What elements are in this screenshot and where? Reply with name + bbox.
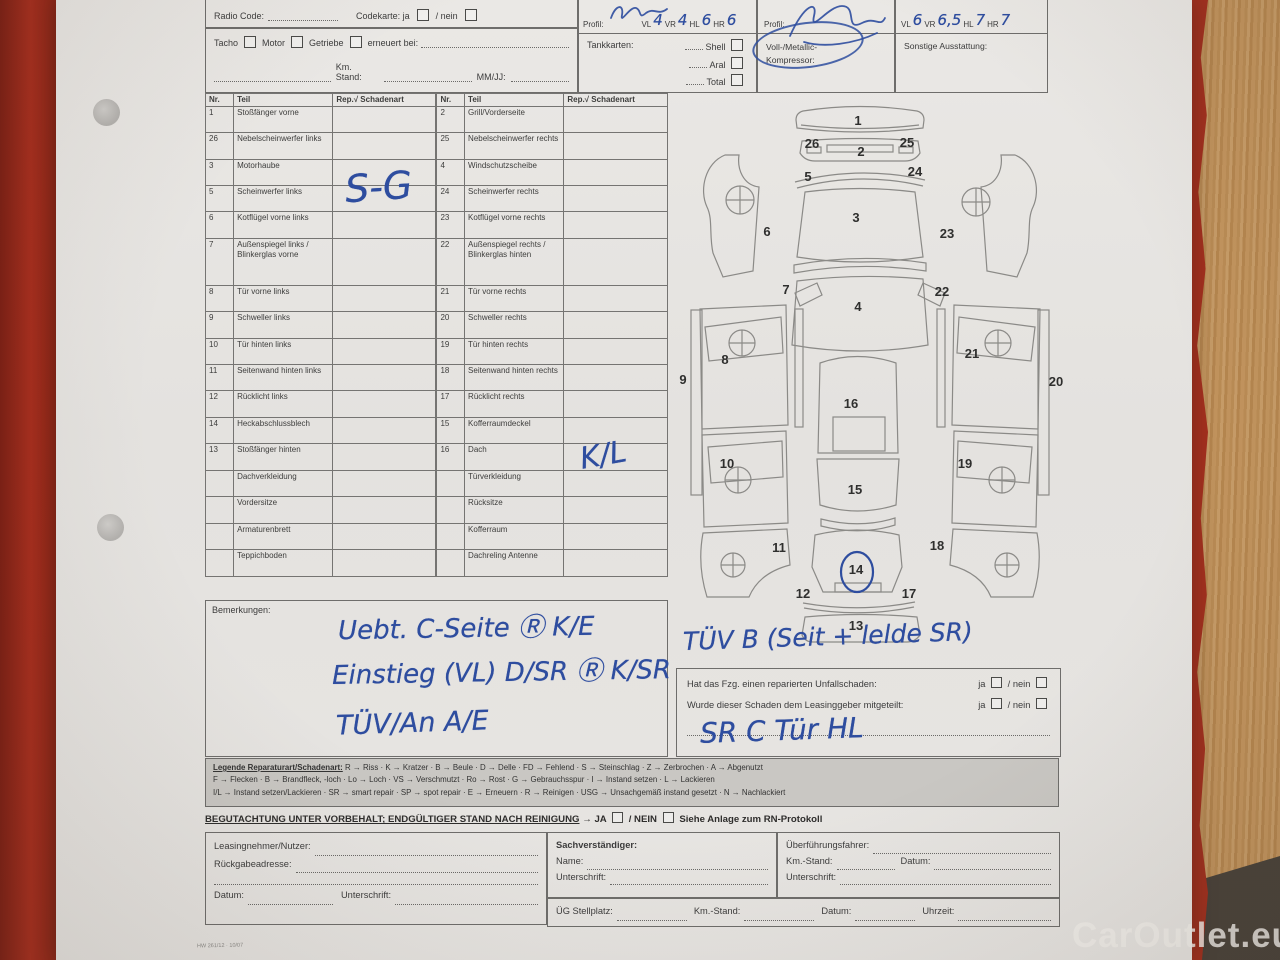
datum-field <box>855 909 915 921</box>
diagram-part-number: 25 <box>900 135 914 150</box>
sachverstaendiger-title: Sachverständiger: <box>556 838 768 854</box>
cell-nr: 4 <box>436 159 464 185</box>
profil-vr-value: 4 <box>678 11 688 29</box>
uhrzeit-label: Uhrzeit: <box>922 903 954 921</box>
mmjj-label: MM/JJ: <box>477 72 506 82</box>
cell-rep <box>333 106 437 132</box>
stellplatz-label: ÜG Stellplatz: <box>556 903 613 921</box>
cell-nr <box>436 523 464 549</box>
damage-parts-table: Nr. Teil Rep.√ Schadenart Nr. Teil Rep.√… <box>205 93 668 577</box>
uhrzeit-field <box>958 909 1051 921</box>
sonstige-box: VL 6 VR 6,5 HL 7 HR 7 Sonstige Ausstattu… <box>895 0 1048 93</box>
cell-rep <box>564 312 668 338</box>
unterschrift-field <box>840 873 1051 885</box>
profil2-vl-value: 6 <box>913 11 923 29</box>
diagram-part-number: 23 <box>940 226 954 241</box>
table-row: DachverkleidungTürverkleidung <box>206 470 668 496</box>
cell-rep <box>564 238 668 285</box>
cell-teil: Stoßfänger vorne <box>234 106 333 132</box>
diagram-part-number: 22 <box>935 284 949 299</box>
datum-label: Datum: <box>214 887 244 905</box>
diagram-part-number: 2 <box>857 144 864 159</box>
cell-nr: 2 <box>436 106 464 132</box>
cell-nr: 13 <box>206 444 234 470</box>
ja-label: ja <box>978 700 985 710</box>
cell-nr <box>436 470 464 496</box>
col-header-nr: Nr. <box>436 94 464 107</box>
cell-teil: Windschutz­scheibe <box>465 159 564 185</box>
pen-scribble <box>608 0 670 26</box>
cell-teil: Rücksitze <box>465 497 564 523</box>
legend-line2: F → Flecken · B → Brandfleck, -loch · Lo… <box>213 774 1051 786</box>
table-row: ArmaturenbrettKofferraum <box>206 523 668 549</box>
unterschrift-field <box>610 873 768 885</box>
cell-teil: Armaturenbrett <box>234 523 333 549</box>
q1-ja-checkbox <box>991 677 1002 688</box>
photo-of-inspection-form: Radio Code: Codekarte: ja / nein Tacho M… <box>0 0 1280 960</box>
diagram-part-number: 5 <box>804 169 811 184</box>
cell-rep <box>333 133 437 159</box>
vorbehalt-text: BEGUTACHTUNG UNTER VORBEHALT; ENDGÜLTIGE… <box>205 814 580 825</box>
radio-code-field <box>268 9 338 21</box>
table-row: 26Nebelschein­werfer links25Nebelschein­… <box>206 133 668 159</box>
leasingnehmer-field <box>315 844 538 856</box>
wheel-hr-label: HR <box>987 20 999 29</box>
table-row: 7Außenspiegel links / Blinkerglas vorne2… <box>206 238 668 285</box>
cell-nr: 7 <box>206 238 234 285</box>
profil2-hl-value: 7 <box>976 11 986 29</box>
cell-teil: Stoßfänger hinten <box>234 444 333 470</box>
col-header-teil: Teil <box>465 94 564 107</box>
diagram-part-number: 16 <box>844 396 858 411</box>
arrow-glyph: → <box>582 814 592 825</box>
cell-rep <box>333 470 437 496</box>
cell-rep <box>333 365 437 391</box>
cell-nr: 6 <box>206 212 234 238</box>
cell-nr <box>206 523 234 549</box>
col-header-nr: Nr. <box>206 94 234 107</box>
punch-hole-bottom <box>97 514 124 541</box>
ja-label: ja <box>978 679 985 689</box>
legend-title: Legende Reparaturart/Schadenart: <box>213 763 343 772</box>
unterschrift-field <box>395 893 538 905</box>
caroutlet-watermark: CarOutlet.eu <box>1072 916 1280 956</box>
profil-left-label: Profil: <box>583 20 603 29</box>
pen-remark-line3: TÜV/An A/E <box>336 705 490 741</box>
cell-nr: 1 <box>206 106 234 132</box>
vorbehalt-rest: Siehe Anlage zum RN-Protokoll <box>679 814 822 825</box>
cell-teil: Außenspiegel links / Blinkerglas vorne <box>234 238 333 285</box>
tankcard-total-label: Total <box>706 77 725 87</box>
cell-nr: 3 <box>206 159 234 185</box>
legend-line1: Legende Reparaturart/Schadenart: R → Ris… <box>213 762 1051 774</box>
q2-ja-checkbox <box>991 698 1002 709</box>
fahrer-label: Überführungsfahrer: <box>786 838 869 854</box>
unterschrift-label: Unterschrift: <box>786 870 836 886</box>
codekarte-nein-checkbox <box>465 9 477 21</box>
cell-teil: Scheinwerfer links <box>234 186 333 212</box>
q1-nein-checkbox <box>1036 677 1047 688</box>
pen-annotation-motorhaube: S-G <box>344 163 414 212</box>
blank-field <box>214 70 331 82</box>
cell-rep <box>564 133 668 159</box>
diagram-part-number: 11 <box>772 540 786 555</box>
cell-teil: Motorhaube <box>234 159 333 185</box>
cell-nr: 21 <box>436 285 464 311</box>
cell-teil: Seitenwand hinten links <box>234 365 333 391</box>
legend-line3: I/L → Instand setzen/Lackieren · SR → sm… <box>213 787 1051 799</box>
profil-hl-value: 6 <box>702 11 712 29</box>
legend-line1-text: R → Riss · K → Kratzer · B → Beule · D →… <box>345 763 763 772</box>
cell-teil: Grill/Vorder­seite <box>465 106 564 132</box>
cell-nr: 26 <box>206 133 234 159</box>
cell-rep <box>564 365 668 391</box>
car-exploded-diagram: 1262255243623722482192010191615111814121… <box>675 95 1065 645</box>
wheel-hl-label: HL <box>689 20 699 29</box>
rueckgabeadresse-label: Rückgabeadresse: <box>214 856 292 874</box>
diagram-part-number: 26 <box>805 136 819 151</box>
diagram-part-number: 19 <box>958 456 972 471</box>
cell-teil: Kotflügel vorne links <box>234 212 333 238</box>
leasingnehmer-box: Leasingnehmer/Nutzer: Rückgabeadresse: D… <box>205 832 547 925</box>
cell-rep <box>564 212 668 238</box>
diagram-part-number: 3 <box>852 210 859 225</box>
red-folder-left-edge <box>0 0 56 960</box>
nein-label: / nein <box>1008 700 1031 710</box>
cell-rep <box>564 106 668 132</box>
cell-teil: Schweller rechts <box>465 312 564 338</box>
motor-label: Motor <box>262 38 285 48</box>
cell-rep <box>333 391 437 417</box>
table-row: 9Schweller links20Schweller rechts <box>206 312 668 338</box>
diagram-part-number: 8 <box>721 352 728 367</box>
cell-rep <box>564 338 668 364</box>
vorbehalt-nein-label: / NEIN <box>629 814 657 825</box>
wood-table-background <box>1196 0 1280 960</box>
tank-dots <box>685 38 703 50</box>
motor-checkbox <box>291 36 303 48</box>
cell-teil: Tür vorne rechts <box>465 285 564 311</box>
erneuert-bei-field <box>421 36 569 48</box>
sachverstaendiger-box: Sachverständiger: Name: Unterschrift: <box>547 832 777 898</box>
name-field <box>587 858 768 870</box>
cell-teil: Kofferraum­deckel <box>465 417 564 443</box>
cell-rep <box>333 550 437 577</box>
pen-answer-note: SR C Tür HL <box>699 711 864 750</box>
cell-teil: Teppichboden <box>234 550 333 577</box>
cell-rep <box>333 444 437 470</box>
diagram-part-number: 17 <box>902 586 916 601</box>
nein-label: / nein <box>1008 679 1031 689</box>
profil2-hr-value: 7 <box>1001 11 1011 29</box>
q2-nein-checkbox <box>1036 698 1047 709</box>
wheel-vl-label: VL <box>901 20 911 29</box>
cell-rep <box>333 212 437 238</box>
diagram-part-number: 15 <box>848 482 862 497</box>
col-header-rep: Rep.√ Schadenart <box>333 94 437 107</box>
cell-rep <box>333 523 437 549</box>
datum-label: Datum: <box>821 903 851 921</box>
pen-remark-line1: Uebt. C-Seite Ⓡ K/E <box>338 606 595 647</box>
cell-nr: 19 <box>436 338 464 364</box>
fahrer-field <box>873 842 1051 854</box>
diagram-part-number: 6 <box>763 224 770 239</box>
km-field <box>837 858 895 870</box>
unterschrift-label: Unterschrift: <box>556 870 606 886</box>
table-row: 10Tür hinten links19Tür hinten rechts <box>206 338 668 364</box>
name-label: Name: <box>556 854 583 870</box>
cell-nr: 25 <box>436 133 464 159</box>
table-row: 3Motorhaube4Windschutz­scheibe <box>206 159 668 185</box>
tacho-box: Tacho Motor Getriebe erneuert bei: Km. S… <box>205 28 578 93</box>
punch-hole-top <box>93 99 120 126</box>
cell-nr: 9 <box>206 312 234 338</box>
cell-nr: 8 <box>206 285 234 311</box>
cell-teil: Türverkleidung <box>465 470 564 496</box>
getriebe-label: Getriebe <box>309 38 344 48</box>
table-row: 5Scheinwerfer links24Scheinwerfer rechts <box>206 186 668 212</box>
cell-rep <box>564 391 668 417</box>
vorbehalt-ja-checkbox <box>612 812 623 823</box>
table-row: 1Stoßfänger vorne2Grill/Vorder­seite <box>206 106 668 132</box>
sonstige-ausstattung-label: Sonstige Ausstattung: <box>904 41 987 51</box>
cell-teil: Kofferraum <box>465 523 564 549</box>
cell-nr: 15 <box>436 417 464 443</box>
radio-code-box: Radio Code: Codekarte: ja / nein <box>205 0 578 28</box>
tankcard-shell-label: Shell <box>705 42 725 52</box>
diagram-part-number: 7 <box>782 282 789 297</box>
wheel-hl-label: HL <box>963 20 973 29</box>
cell-rep <box>564 285 668 311</box>
cell-nr: 14 <box>206 417 234 443</box>
cell-rep <box>333 338 437 364</box>
cell-nr: 24 <box>436 186 464 212</box>
cell-teil: Außenspiegel rechts / Blinkerglas hinten <box>465 238 564 285</box>
question-leasinggeber: Wurde dieser Schaden dem Leasinggeber mi… <box>687 700 903 710</box>
cell-nr: 10 <box>206 338 234 364</box>
diagram-part-number: 18 <box>930 538 944 553</box>
cell-nr: 17 <box>436 391 464 417</box>
km-stand-label: Km. Stand: <box>336 62 379 82</box>
km-stand-label: Km.-Stand: <box>786 854 833 870</box>
codekarte-label: Codekarte: ja <box>356 11 410 21</box>
vorbehalt-nein-checkbox <box>663 812 674 823</box>
adresse-field2 <box>214 873 538 885</box>
table-row: 6Kotflügel vorne links23Kotflügel vorne … <box>206 212 668 238</box>
cell-nr <box>206 550 234 577</box>
table-row: TeppichbodenDachreling Antenne <box>206 550 668 577</box>
cell-teil: Dachverkleidung <box>234 470 333 496</box>
cell-nr <box>206 470 234 496</box>
cell-teil: Tür vorne links <box>234 285 333 311</box>
cell-teil: Vordersitze <box>234 497 333 523</box>
bemerkungen-label: Bemerkungen: <box>212 605 271 615</box>
cell-teil: Tür hinten links <box>234 338 333 364</box>
cell-nr: 22 <box>436 238 464 285</box>
unterschrift-label: Unterschrift: <box>341 887 391 905</box>
cell-teil: Rücklicht links <box>234 391 333 417</box>
cell-nr <box>206 497 234 523</box>
cell-teil: Tür hinten rechts <box>465 338 564 364</box>
diagram-part-number: 9 <box>679 372 686 387</box>
datum-label: Datum: <box>901 854 931 870</box>
tankcard-total-checkbox <box>731 74 743 86</box>
legend-box: Legende Reparaturart/Schadenart: R → Ris… <box>205 758 1059 807</box>
cell-rep <box>333 285 437 311</box>
datum-field <box>248 893 333 905</box>
cell-teil: Dach <box>465 444 564 470</box>
cell-nr: 5 <box>206 186 234 212</box>
diagram-part-number: 21 <box>965 346 979 361</box>
tankcard-aral-label: Aral <box>709 60 725 70</box>
km-stand-label: Km.-Stand: <box>694 903 741 921</box>
pen-remark-line2: Einstieg (VL) D/SR Ⓡ K/SR <box>332 649 672 692</box>
tankkarten-label: Tankkarten: <box>587 40 634 50</box>
cell-teil: Heckabschluss­blech <box>234 417 333 443</box>
km-stand-field <box>384 70 472 82</box>
table-row: 11Seitenwand hinten links18Seitenwand hi… <box>206 365 668 391</box>
cell-rep <box>564 159 668 185</box>
col-header-teil: Teil <box>234 94 333 107</box>
cell-teil: Nebelschein­werfer rechts <box>465 133 564 159</box>
cell-teil: Kotflügel vorne rechts <box>465 212 564 238</box>
erneuert-bei-label: erneuert bei: <box>368 38 419 48</box>
cell-nr: 20 <box>436 312 464 338</box>
cell-nr: 12 <box>206 391 234 417</box>
cell-rep <box>333 312 437 338</box>
mmjj-field <box>511 70 569 82</box>
cell-nr: 18 <box>436 365 464 391</box>
tankcard-shell-checkbox <box>731 39 743 51</box>
diagram-part-number: 14 <box>849 562 864 577</box>
cell-nr <box>436 550 464 577</box>
cell-rep <box>564 470 668 496</box>
codekarte-ja-checkbox <box>417 9 429 21</box>
diagram-part-number: 12 <box>796 586 810 601</box>
diagram-part-number: 20 <box>1049 374 1063 389</box>
wheel-hr-label: HR <box>713 20 725 29</box>
cell-nr <box>436 497 464 523</box>
table-header-row: Nr. Teil Rep.√ Schadenart Nr. Teil Rep.√… <box>206 94 668 107</box>
cell-rep <box>564 186 668 212</box>
table-row: 8Tür vorne links21Tür vorne rechts <box>206 285 668 311</box>
cell-rep <box>564 497 668 523</box>
km-field <box>744 909 814 921</box>
cell-rep <box>333 417 437 443</box>
radio-code-label: Radio Code: <box>214 11 264 21</box>
cell-teil: Rücklicht rechts <box>465 391 564 417</box>
tacho-checkbox <box>244 36 256 48</box>
stellplatz-field <box>617 909 687 921</box>
cell-rep <box>564 523 668 549</box>
vorbehalt-ja-label: JA <box>594 814 606 825</box>
cell-rep <box>333 238 437 285</box>
leasingnehmer-label: Leasingnehmer/Nutzer: <box>214 838 311 856</box>
tacho-label: Tacho <box>214 38 238 48</box>
cell-teil: Schweller links <box>234 312 333 338</box>
cell-teil: Seitenwand hinten rechts <box>465 365 564 391</box>
cell-teil: Nebelschein­werfer links <box>234 133 333 159</box>
cell-nr: 16 <box>436 444 464 470</box>
tank-dots <box>686 73 704 85</box>
profil-hr-value: 6 <box>727 11 737 29</box>
ueberfuehrungsfahrer-box: Überführungsfahrer: Km.-Stand: Datum: Un… <box>777 832 1060 898</box>
codekarte-nein-label: / nein <box>436 11 458 21</box>
diagram-part-number: 1 <box>854 113 861 128</box>
getriebe-checkbox <box>350 36 362 48</box>
tank-dots <box>689 56 707 68</box>
cell-rep <box>564 550 668 577</box>
form-code: HW 261/12 · 10/07 <box>197 943 243 950</box>
wheel-vr-label: VR <box>924 20 935 29</box>
cell-nr: 11 <box>206 365 234 391</box>
table-row: 12Rücklicht links17Rücklicht rechts <box>206 391 668 417</box>
cell-teil: Scheinwerfer rechts <box>465 186 564 212</box>
ueg-stellplatz-box: ÜG Stellplatz: Km.-Stand: Datum: Uhrzeit… <box>547 898 1060 927</box>
vorbehalt-line: BEGUTACHTUNG UNTER VORBEHALT; ENDGÜLTIGE… <box>205 812 1059 825</box>
cell-teil: Dachreling Antenne <box>465 550 564 577</box>
profil2-vr-value: 6,5 <box>937 11 961 29</box>
col-header-rep: Rep.√ Schadenart <box>564 94 668 107</box>
diagram-part-number: 10 <box>720 456 734 471</box>
tankcard-aral-checkbox <box>731 57 743 69</box>
cell-rep <box>333 497 437 523</box>
question-unfallschaden: Hat das Fzg. einen reparierten Unfallsch… <box>687 679 877 689</box>
cell-nr: 23 <box>436 212 464 238</box>
rueckgabeadresse-field <box>296 861 538 873</box>
table-row: VordersitzeRücksitze <box>206 497 668 523</box>
diagram-part-number: 24 <box>908 164 923 179</box>
diagram-part-number: 4 <box>854 299 862 314</box>
datum-field <box>934 858 1051 870</box>
